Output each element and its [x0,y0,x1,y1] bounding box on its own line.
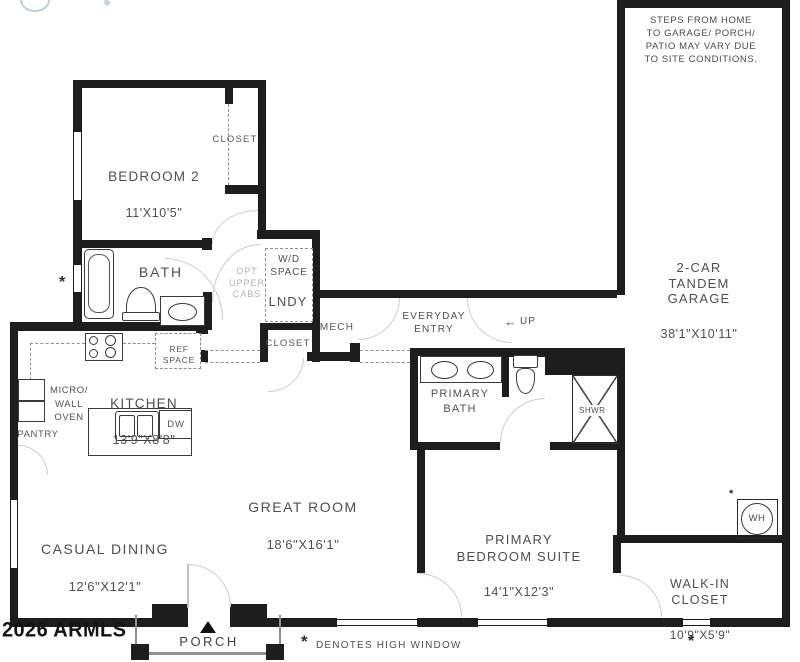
room-name: CASUAL DINING [10,541,200,559]
room-label-kitchen: KITCHEN 13'9"X8'8" [74,376,214,469]
burner-icon [105,335,116,346]
label-wh: WH [749,513,766,525]
burner-icon [89,336,98,345]
room-label-hall-closet: CLOSET [265,338,310,350]
room-label-primary-bath: PRIMARY BATH [431,387,489,417]
room-label-bedroom2: BEDROOM 2 11'X10'5" [74,149,234,242]
wall [617,348,625,535]
label-pantry: PANTRY [17,429,58,441]
label-ref-space: REF SPACE [163,344,195,366]
wall [617,0,790,8]
room-label-great-room: GREAT ROOM 18'6"X16'1" [218,479,388,573]
stairs-label: UP [520,316,536,327]
wall [73,80,82,132]
wall [230,604,267,627]
up-arrow-icon: ← [504,315,517,328]
porch-post [266,644,284,660]
disclaimer-note: STEPS FROM HOME TO GARAGE/ PORCH/ PATIO … [621,14,781,66]
burner-icon [105,347,116,358]
room-label-bath: BATH [139,264,183,282]
label-opt-upper-cabs: OPT UPPER CABS [229,266,265,301]
wall-oven-cabinet [18,401,45,422]
room-name: PRIMARY BEDROOM SUITE [424,532,614,565]
stairs-up-label: ← UP [504,315,536,328]
legend-asterisk: * [301,633,308,650]
porch-edge [135,652,281,655]
wall [265,618,337,627]
toilet [126,287,156,315]
porch-entry-marker-icon [200,621,216,633]
toilet-bowl [516,368,535,394]
room-dims: 13'9"X8'8" [74,433,214,449]
vanity-sink [431,361,458,379]
high-window-asterisk: * [729,489,733,500]
room-label-porch: PORCH [179,634,238,650]
wall [260,323,312,330]
toilet-base [122,312,160,321]
porch-post [131,644,149,660]
room-dims: 12'6"X12'1" [10,579,200,595]
counter-dashed [30,343,85,344]
wall [307,352,352,361]
door-arc [268,358,304,392]
room-label-everyday-entry: EVERYDAY ENTRY [402,310,465,336]
legend-text: DENOTES HIGH WINDOW [316,640,462,651]
window [73,265,82,292]
room-name: BEDROOM 2 [74,169,234,186]
room-name: KITCHEN [74,396,214,413]
room-name: WALK-IN CLOSET [630,577,770,608]
room-dims: 38'1"X10'11" [619,327,779,343]
high-window-asterisk: * [59,275,65,291]
counter-dashed [123,343,155,344]
opening-dashed [360,350,410,351]
room-dims: 10'9"X5'9" [630,628,770,643]
wall [258,88,266,230]
wall [502,348,509,397]
door-arc [18,445,48,475]
room-label-garage: 2-CAR TANDEM GARAGE 38'1"X10'11" [619,240,779,362]
wall [10,322,18,500]
room-label-laundry: LNDY [269,294,308,310]
room-label-walk-in-closet: WALK-IN CLOSET 10'9"X5'9" [630,557,770,662]
wall [613,543,621,573]
door-arc [500,398,545,443]
bath-sink-bowl [168,303,197,321]
wall [410,348,418,450]
opening-dashed [360,362,410,363]
wall [307,290,617,298]
high-window-asterisk: * [688,634,694,650]
wall [73,80,266,88]
opening-dashed [205,350,260,351]
vanity-sink [467,361,494,379]
wall-oven-cabinet [18,379,45,401]
wall [350,343,360,362]
door-arc [358,298,400,340]
room-dims: 18'6"X16'1" [218,537,388,553]
label-dw: DW [167,419,184,431]
room-dims: 11'X10'5" [74,206,234,222]
floor-plan: STEPS FROM HOME TO GARAGE/ PORCH/ PATIO … [0,0,800,662]
logo-fragment-icon [103,0,111,6]
wall [225,88,233,104]
room-label-wd-space: W/D SPACE [270,254,307,279]
bathtub-inner [88,254,110,313]
wall [545,348,618,375]
burner-icon [89,349,98,358]
wall [312,239,320,362]
room-dims: 14'1"X12'3" [424,585,614,601]
wall [782,0,790,627]
room-label-mech: MECH [320,322,354,335]
watermark: 2026 ARMLS [2,618,126,642]
room-name: 2-CAR TANDEM GARAGE [619,260,779,307]
window [337,619,417,626]
opening-dashed [205,362,260,363]
wall [73,248,82,265]
logo-fragment-icon [20,0,50,12]
toilet-tank [513,355,538,368]
room-name: GREAT ROOM [218,499,388,517]
room-label-primary-bedroom: PRIMARY BEDROOM SUITE 14'1"X12'3" [424,512,614,621]
label-micro-wall-oven: MICRO/ WALL OVEN [50,384,88,425]
wall [257,230,320,239]
room-label-casual-dining: CASUAL DINING 12'6"X12'1" [10,521,200,615]
room-label-bedroom2-closet: CLOSET [212,134,257,146]
label-shwr: SHWR [577,405,607,416]
